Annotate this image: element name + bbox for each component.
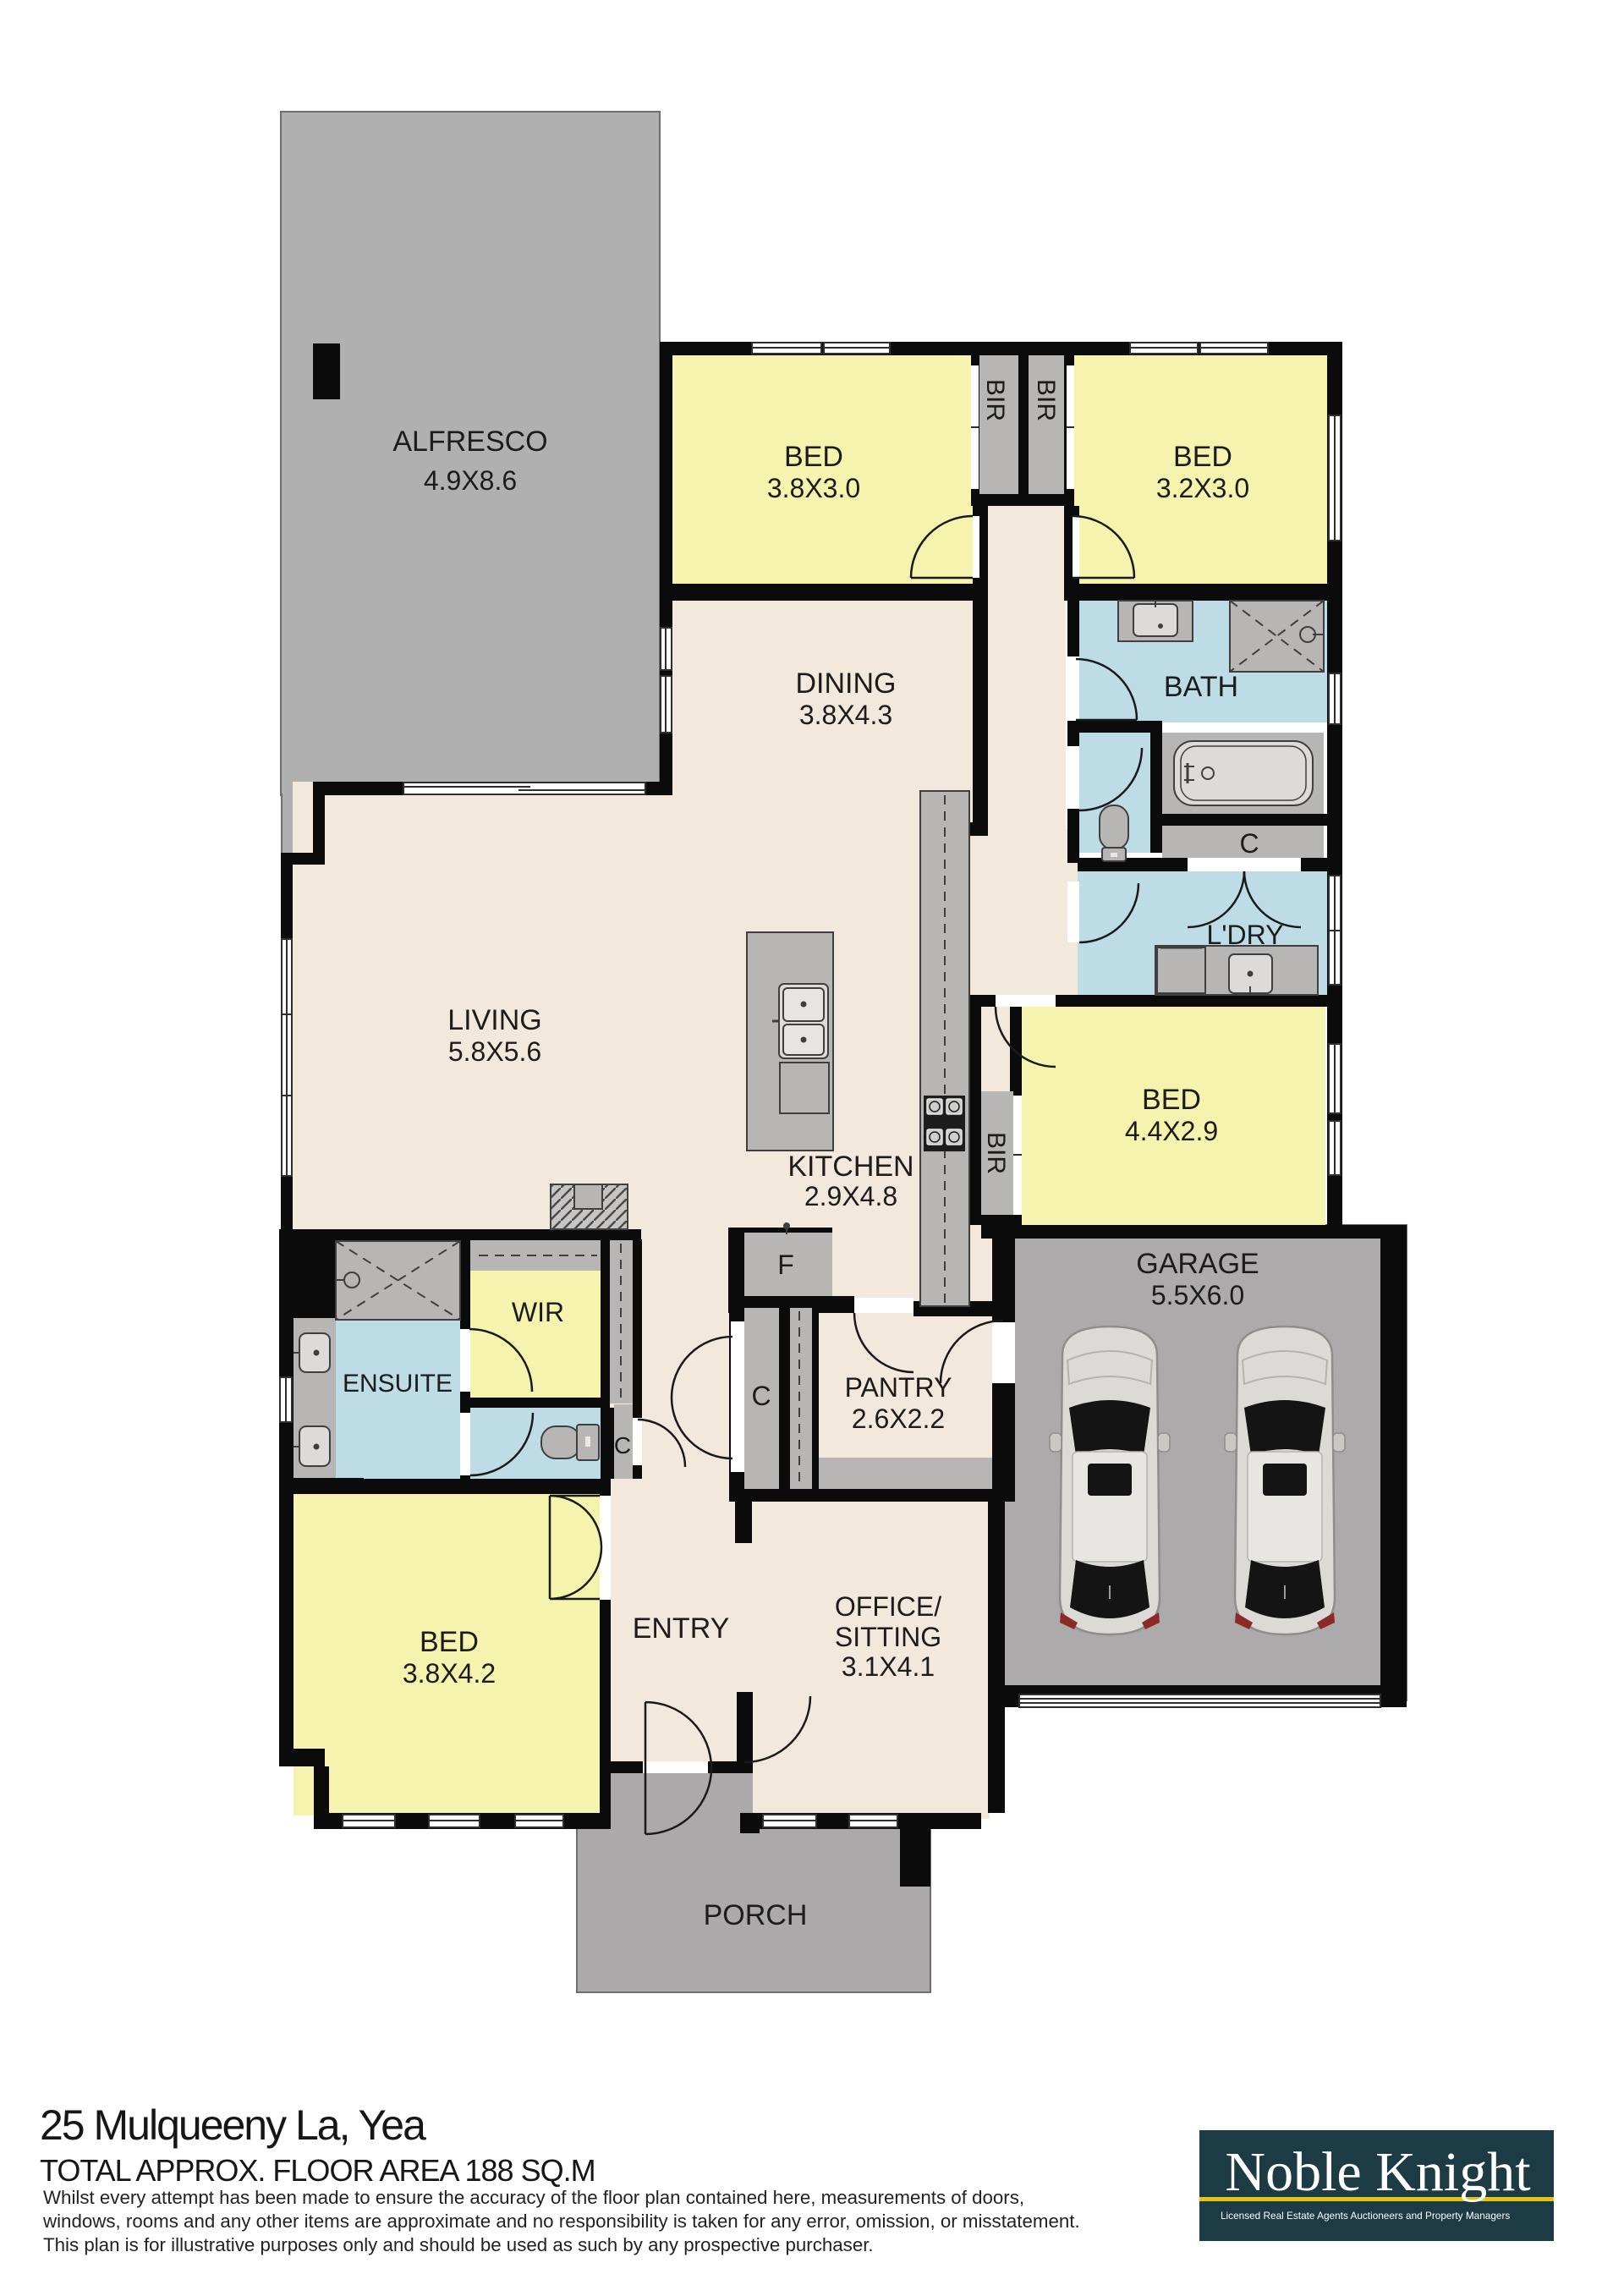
svg-text:C: C — [614, 1432, 631, 1458]
svg-text:PANTRY: PANTRY — [845, 1372, 952, 1403]
svg-text:BED: BED — [420, 1626, 479, 1658]
svg-text:3.8X3.0: 3.8X3.0 — [767, 473, 860, 503]
svg-text:BATH: BATH — [1164, 671, 1238, 703]
svg-text:BIR: BIR — [982, 1132, 1010, 1174]
svg-text:2.6X2.2: 2.6X2.2 — [852, 1403, 945, 1434]
svg-text:4.4X2.9: 4.4X2.9 — [1125, 1116, 1218, 1146]
svg-text:25 Mulqueeny La, Yea: 25 Mulqueeny La, Yea — [40, 2101, 426, 2149]
svg-text:3.2X3.0: 3.2X3.0 — [1156, 473, 1249, 503]
svg-text:5.5X6.0: 5.5X6.0 — [1151, 1280, 1244, 1310]
svg-text:TOTAL APPROX. FLOOR AREA 188 S: TOTAL APPROX. FLOOR AREA 188 SQ.M — [40, 2153, 595, 2188]
svg-text:GARAGE: GARAGE — [1136, 1248, 1259, 1280]
svg-text:PORCH: PORCH — [704, 1899, 808, 1931]
svg-text:4.9X8.6: 4.9X8.6 — [424, 465, 517, 496]
svg-text:BIR: BIR — [1032, 379, 1060, 421]
svg-text:F: F — [777, 1250, 794, 1280]
svg-text:LIVING: LIVING — [447, 1004, 541, 1036]
svg-text:ENSUITE: ENSUITE — [343, 1370, 453, 1398]
svg-text:ENTRY: ENTRY — [633, 1612, 730, 1645]
svg-text:BIR: BIR — [981, 379, 1009, 421]
svg-text:windows, rooms and any other i: windows, rooms and any other items are a… — [42, 2211, 1080, 2232]
svg-text:This plan is for illustrative: This plan is for illustrative purposes o… — [43, 2234, 874, 2255]
svg-text:ALFRESCO: ALFRESCO — [392, 426, 547, 458]
svg-text:C: C — [751, 1381, 771, 1411]
svg-text:BED: BED — [1142, 1084, 1201, 1116]
svg-text:C: C — [1239, 828, 1259, 859]
svg-text:Licensed Real Estate Agents Au: Licensed Real Estate Agents Auctioneers … — [1221, 2210, 1510, 2222]
svg-text:SITTING: SITTING — [835, 1622, 941, 1652]
svg-text:Noble Knight: Noble Knight — [1225, 2141, 1530, 2203]
svg-text:KITCHEN: KITCHEN — [787, 1151, 913, 1183]
svg-text:3.8X4.2: 3.8X4.2 — [403, 1658, 496, 1689]
svg-text:2.9X4.8: 2.9X4.8 — [804, 1181, 897, 1211]
svg-text:BED: BED — [1173, 441, 1232, 473]
svg-text:Whilst every attempt has been: Whilst every attempt has been made to en… — [43, 2187, 1024, 2208]
svg-text:L'DRY: L'DRY — [1207, 920, 1284, 950]
svg-text:3.8X4.3: 3.8X4.3 — [799, 700, 892, 730]
svg-text:DINING: DINING — [796, 667, 897, 700]
svg-text:3.1X4.1: 3.1X4.1 — [842, 1651, 935, 1682]
svg-text:5.8X5.6: 5.8X5.6 — [448, 1036, 541, 1067]
svg-text:BED: BED — [784, 441, 843, 473]
svg-text:OFFICE/: OFFICE/ — [835, 1591, 941, 1622]
svg-text:WIR: WIR — [512, 1297, 564, 1327]
